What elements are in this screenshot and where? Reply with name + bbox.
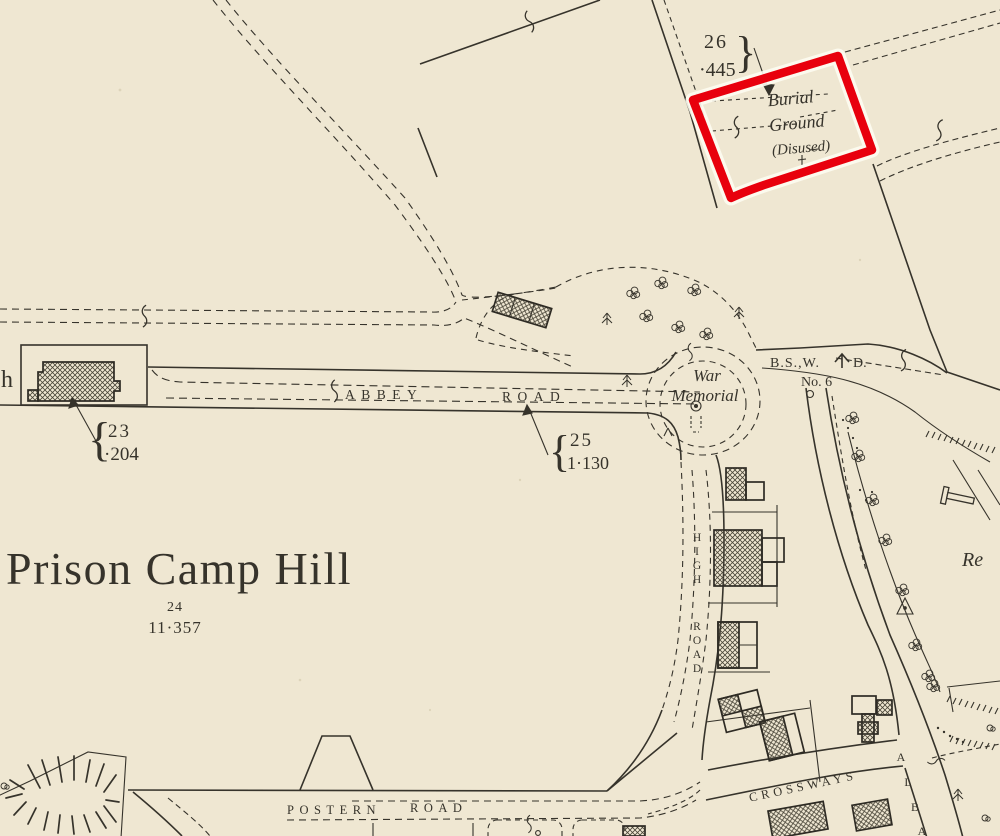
postern-road-label-1: POSTERN: [287, 803, 381, 817]
high-road-letter: D: [693, 663, 701, 675]
parcel-number: 25: [570, 430, 593, 451]
parcel-area: 1·130: [567, 453, 609, 473]
high-road-letter: O: [693, 635, 701, 647]
abbey-road-label-1: ABBEY: [345, 387, 423, 402]
high-road-letter: G: [693, 560, 701, 572]
high-road-letter: H: [693, 574, 701, 586]
parcel-number: 23: [108, 421, 131, 442]
recreation-label-fragment: Re: [961, 549, 983, 571]
postern-road-label-2: ROAD: [410, 801, 467, 815]
abbey-road-label-2: ROAD: [502, 389, 566, 404]
burial-ground-label-line1: Burial: [767, 86, 815, 110]
edge-label-fragment: h: [1, 367, 13, 393]
prison-camp-hill-title: Prison Camp Hill: [6, 543, 352, 594]
map-canvas: 26 ·445 } Burial Ground (Disused) ABBE: [0, 0, 1000, 836]
parcel-brace: }: [735, 28, 756, 77]
high-road-letter: R: [693, 621, 701, 633]
war-memorial-label-line1: War: [693, 366, 721, 385]
war-memorial-label-line2: Memorial: [670, 386, 738, 405]
albany-letter: A: [897, 750, 906, 764]
parcel-number: 24: [167, 600, 183, 615]
bs-number: No. 6: [801, 375, 832, 390]
parcel-area: ·204: [104, 444, 139, 465]
parcel-number: 26: [704, 31, 728, 53]
parcel-area: 11·357: [148, 618, 202, 637]
albany-letter: L: [904, 775, 911, 789]
parcel-area: ·445: [699, 59, 736, 81]
albany-letter: A: [918, 824, 927, 836]
paper-background: [0, 0, 1000, 836]
high-road-letter: I: [695, 546, 699, 558]
high-road-letter: A: [693, 649, 702, 661]
albany-letter: B: [911, 800, 919, 814]
lodge-building: [38, 362, 120, 401]
high-road-letter: H: [693, 532, 701, 544]
bs-wd-label-2: D.: [853, 356, 867, 371]
